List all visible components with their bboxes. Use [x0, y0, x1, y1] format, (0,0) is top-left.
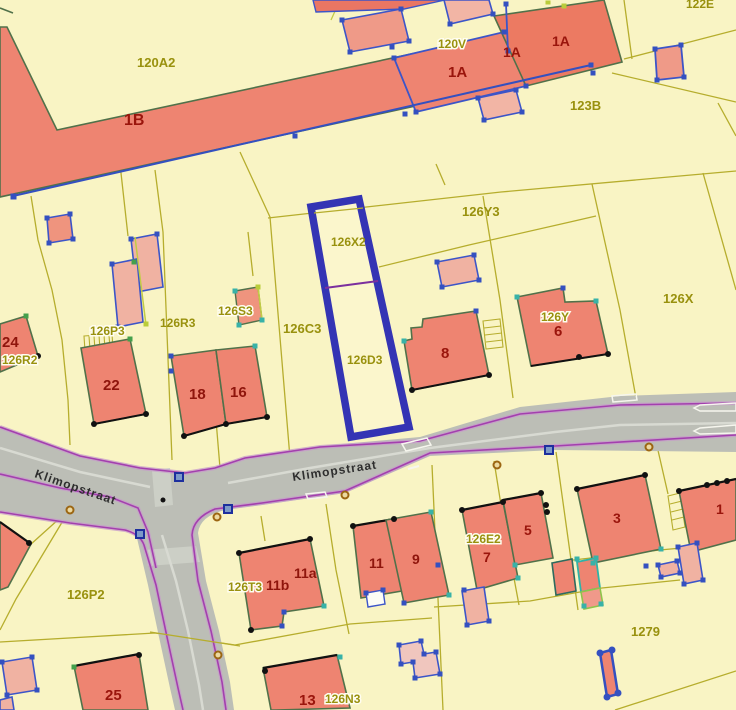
- svg-text:13: 13: [299, 692, 316, 709]
- svg-text:6: 6: [554, 323, 562, 340]
- svg-text:24: 24: [2, 334, 19, 351]
- svg-text:1A: 1A: [448, 64, 467, 81]
- svg-text:126E2: 126E2: [466, 532, 501, 546]
- svg-text:120V: 120V: [438, 37, 466, 51]
- svg-text:1B: 1B: [124, 112, 144, 129]
- svg-text:8: 8: [441, 345, 449, 362]
- svg-text:126T3: 126T3: [228, 580, 262, 594]
- svg-text:126P2: 126P2: [67, 587, 105, 602]
- svg-text:5: 5: [524, 522, 532, 538]
- svg-text:126Y: 126Y: [541, 310, 569, 324]
- svg-text:1279: 1279: [631, 624, 660, 639]
- svg-text:126P3: 126P3: [90, 324, 125, 338]
- svg-text:1A: 1A: [503, 44, 521, 60]
- svg-text:126C3: 126C3: [283, 321, 321, 336]
- svg-text:1: 1: [716, 501, 724, 517]
- svg-text:126Y3: 126Y3: [462, 204, 500, 219]
- svg-text:126X2: 126X2: [331, 235, 366, 249]
- svg-text:11a: 11a: [294, 565, 317, 581]
- svg-text:126R3: 126R3: [160, 316, 196, 330]
- svg-text:126D3: 126D3: [347, 353, 383, 367]
- svg-text:16: 16: [230, 384, 247, 401]
- svg-text:126X: 126X: [663, 291, 694, 306]
- svg-text:126N3: 126N3: [325, 692, 361, 706]
- svg-text:11b: 11b: [266, 577, 289, 593]
- svg-text:11: 11: [369, 555, 384, 571]
- svg-text:7: 7: [483, 549, 491, 565]
- svg-text:9: 9: [412, 551, 420, 567]
- svg-text:3: 3: [613, 510, 621, 526]
- svg-text:122E: 122E: [686, 0, 714, 11]
- svg-text:126R2: 126R2: [2, 353, 38, 367]
- svg-text:22: 22: [103, 377, 120, 394]
- svg-text:1A: 1A: [552, 33, 570, 49]
- svg-text:126S3: 126S3: [218, 304, 253, 318]
- svg-text:25: 25: [105, 687, 122, 704]
- svg-text:18: 18: [189, 386, 206, 403]
- svg-text:120A2: 120A2: [137, 55, 175, 70]
- svg-text:123B: 123B: [570, 98, 601, 113]
